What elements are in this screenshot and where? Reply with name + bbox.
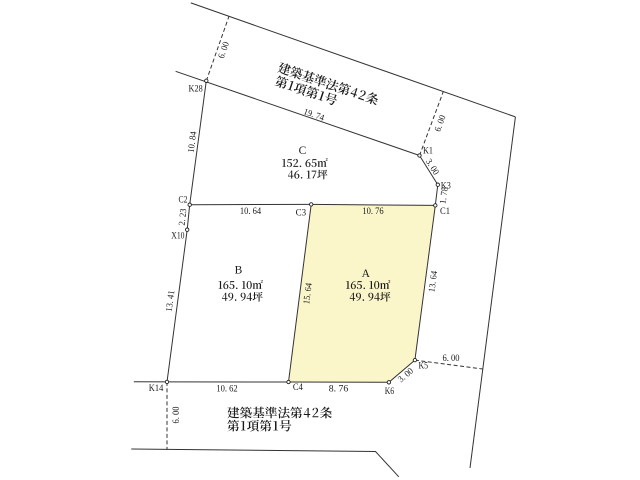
svg-text:C: C bbox=[299, 145, 307, 157]
svg-text:K1: K1 bbox=[423, 147, 433, 157]
svg-text:13. 41: 13. 41 bbox=[164, 289, 177, 312]
svg-text:19. 74: 19. 74 bbox=[302, 106, 326, 123]
svg-text:K14: K14 bbox=[149, 384, 164, 394]
svg-text:10. 64: 10. 64 bbox=[240, 206, 262, 216]
svg-text:C3: C3 bbox=[296, 209, 307, 219]
svg-text:10. 62: 10. 62 bbox=[216, 383, 238, 393]
svg-text:10. 84: 10. 84 bbox=[186, 130, 199, 153]
svg-text:6. 00: 6. 00 bbox=[171, 406, 181, 423]
svg-text:K6: K6 bbox=[385, 387, 395, 397]
svg-text:6. 00: 6. 00 bbox=[216, 40, 231, 60]
svg-text:C4: C4 bbox=[293, 383, 303, 393]
svg-text:C2: C2 bbox=[179, 196, 188, 206]
svg-text:X10: X10 bbox=[171, 232, 184, 242]
svg-text:K5: K5 bbox=[419, 362, 429, 372]
svg-text:10. 76: 10. 76 bbox=[362, 206, 384, 216]
svg-text:A: A bbox=[362, 268, 371, 280]
svg-text:1. 78: 1. 78 bbox=[438, 186, 450, 204]
svg-text:K28: K28 bbox=[189, 85, 204, 95]
svg-text:8. 76: 8. 76 bbox=[329, 384, 349, 394]
svg-text:B: B bbox=[235, 265, 243, 277]
svg-text:2. 23: 2. 23 bbox=[177, 208, 189, 226]
svg-text:6. 00: 6. 00 bbox=[443, 353, 460, 363]
svg-text:C1: C1 bbox=[440, 207, 450, 217]
svg-text:13. 64: 13. 64 bbox=[426, 270, 439, 293]
